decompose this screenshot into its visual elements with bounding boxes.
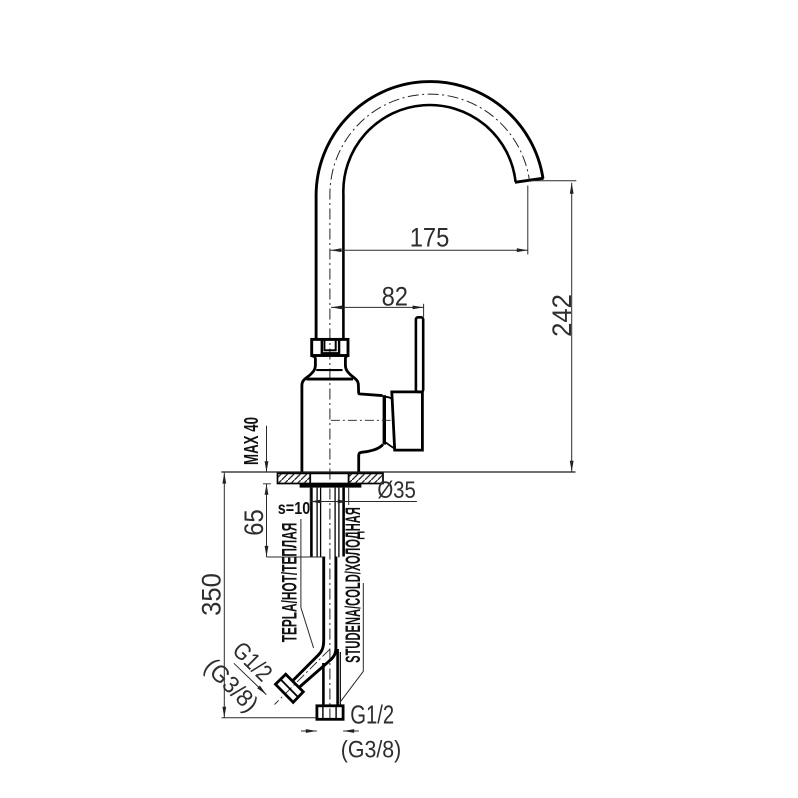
- svg-text:MAX 40: MAX 40: [241, 417, 263, 465]
- svg-text:65: 65: [240, 509, 270, 535]
- svg-text:Ø35: Ø35: [377, 476, 416, 503]
- svg-text:TEPLA/HOT/ТЕПЛАЯ: TEPLA/HOT/ТЕПЛАЯ: [278, 523, 301, 643]
- svg-text:s=10: s=10: [278, 499, 310, 519]
- svg-text:175: 175: [410, 223, 450, 253]
- svg-text:STUDENA/COLD/ХОЛОДНАЯ: STUDENA/COLD/ХОЛОДНАЯ: [341, 507, 365, 663]
- svg-text:82: 82: [382, 282, 408, 312]
- svg-text:(G3/8): (G3/8): [341, 735, 401, 762]
- svg-text:350: 350: [196, 573, 227, 616]
- svg-text:G1/2: G1/2: [350, 700, 394, 729]
- svg-text:242: 242: [546, 294, 577, 337]
